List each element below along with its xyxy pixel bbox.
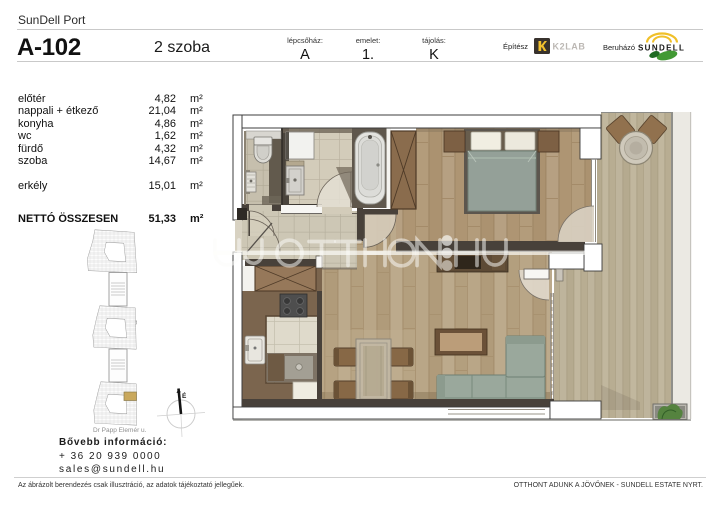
svg-text:É: É: [182, 391, 187, 400]
